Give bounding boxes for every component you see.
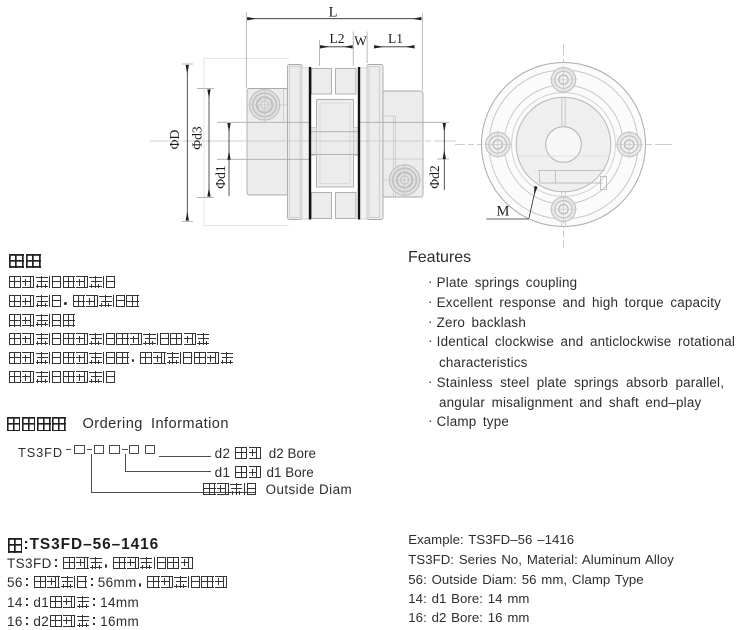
svg-text:Φd1: Φd1 <box>213 165 228 188</box>
svg-text:L2: L2 <box>330 31 345 46</box>
svg-text:Φd2: Φd2 <box>427 165 442 188</box>
svg-text:Φd3: Φd3 <box>190 126 205 150</box>
svg-text:L1: L1 <box>388 31 403 46</box>
svg-text:ΦD: ΦD <box>167 129 182 149</box>
svg-text:L: L <box>329 4 338 20</box>
svg-text:W: W <box>354 34 367 49</box>
svg-text:M: M <box>497 204 510 220</box>
